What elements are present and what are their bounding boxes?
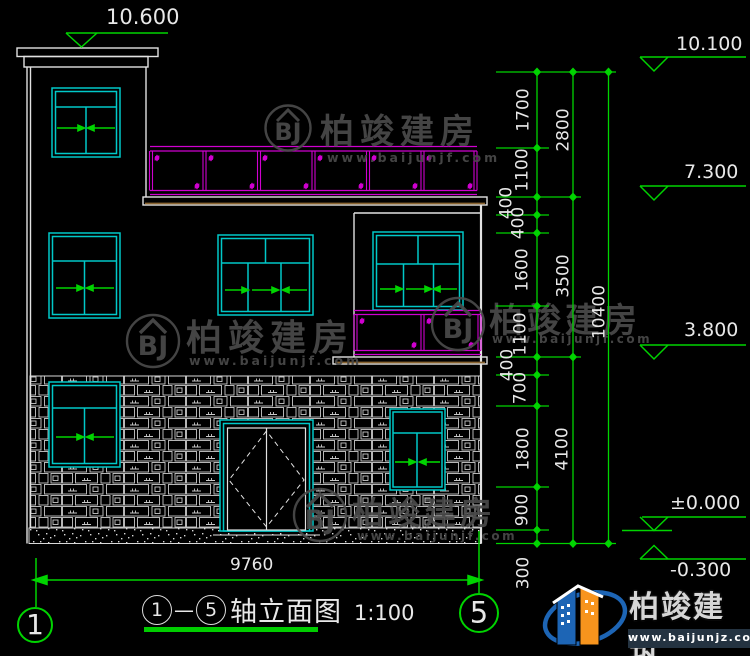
bj-monogram: BJ: [443, 314, 474, 345]
dim-400: 400: [511, 207, 528, 239]
window-1f-left: [49, 382, 120, 467]
watermark-url: www.baijunjf.com: [189, 353, 362, 368]
dim-1700: 1700: [516, 88, 533, 131]
title-name: 轴立面图: [230, 590, 342, 629]
bj-monogram: BJ: [274, 118, 301, 146]
elevation-label-minus300: -0.300: [670, 561, 731, 580]
window-2f-left: [49, 233, 120, 318]
dim-1100: 1100: [515, 148, 532, 191]
elevation-label-10100: 10.100: [676, 35, 742, 54]
dim-900: 900: [515, 494, 532, 526]
elevation-label-7300: 7.300: [684, 163, 738, 182]
title-dash: —: [174, 598, 194, 622]
axis-number-1: 1: [26, 611, 44, 639]
window-2f-middle: [218, 235, 313, 315]
watermark-url: www.baijunjf.com: [327, 150, 500, 165]
dim-4100: 4100: [555, 427, 572, 470]
dim-9760: 9760: [230, 557, 273, 574]
drawing-title: 1 — 5 轴立面图 1:100: [142, 590, 415, 629]
brand-logo-icon: [539, 584, 631, 653]
bj-monogram: BJ: [138, 331, 169, 362]
entrance-door: [220, 420, 313, 531]
watermark-url: www.baijunjf.com: [357, 529, 517, 543]
title-scale: 1:100: [354, 601, 415, 625]
title-axis-start: 1: [142, 595, 172, 625]
elevation-label-0000: ±0.000: [670, 494, 740, 513]
title-axis-end: 5: [196, 595, 226, 625]
elevation-label-3800: 3.800: [684, 321, 738, 340]
watermark-name: 柏竣建房: [352, 494, 496, 532]
title-underline: [144, 627, 318, 632]
axis-number-5: 5: [470, 599, 488, 628]
cad-elevation-sheet: BJ BJ BJ BJ 柏竣建房 www.baijunjf.com 柏竣建房 w…: [0, 0, 750, 656]
dim-3500: 3500: [556, 254, 573, 297]
dim-10400: 10400: [592, 285, 609, 339]
elevation-top-label: 10.600: [106, 7, 179, 28]
window-1f-right: [390, 409, 445, 490]
dim-1800: 1800: [516, 427, 533, 470]
brand-url: www.baijunjz.com: [628, 629, 750, 648]
dim-300: 300: [516, 557, 533, 589]
dim-2800: 2800: [556, 108, 573, 151]
tower-window: [52, 88, 120, 157]
elevation-drawing: BJ BJ BJ BJ 柏竣建房 www.baijunjf.com 柏竣建房 w…: [0, 0, 750, 656]
dim-1600: 1600: [515, 248, 532, 291]
watermark-name: 柏竣建房: [320, 112, 480, 152]
bj-monogram: BJ: [305, 505, 336, 536]
dim-700: 700: [513, 372, 530, 404]
